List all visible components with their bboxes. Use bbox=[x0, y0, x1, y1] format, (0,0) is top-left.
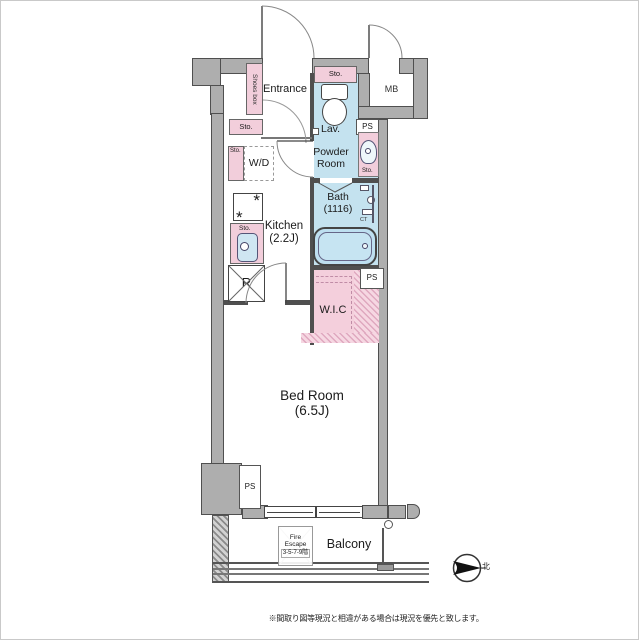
entrance-label: Entrance bbox=[259, 82, 311, 96]
powder-room-label: Powder Room bbox=[307, 145, 355, 173]
balcony-rail-line bbox=[213, 573, 429, 575]
compass-north-label: 北 bbox=[482, 563, 490, 572]
balcony-rail-line bbox=[213, 568, 429, 570]
ps-label: PS bbox=[367, 274, 378, 283]
balcony-divider-line bbox=[382, 528, 384, 566]
disclaimer-note: ※間取り図等現況と相違がある場合は現況を優先と致します。 bbox=[226, 613, 526, 626]
sto-label: Sto. bbox=[239, 225, 251, 232]
wall-powder-bath-left bbox=[314, 178, 320, 183]
balcony-rail-line bbox=[213, 562, 429, 564]
washer-dryer-space: W/D bbox=[244, 146, 274, 181]
ps-box-mid: PS bbox=[360, 268, 384, 289]
refrigerator-space: R bbox=[228, 265, 265, 302]
sto-label: Sto. bbox=[329, 70, 342, 78]
mb-label: MB bbox=[370, 73, 413, 106]
sliding-window bbox=[316, 506, 363, 518]
wic-wall-hatch-bottom bbox=[301, 333, 379, 343]
faucet-icon bbox=[365, 148, 371, 154]
balcony-drain-block bbox=[377, 564, 394, 571]
shower-pipe bbox=[372, 185, 374, 223]
balcony-hook bbox=[384, 520, 393, 529]
sliding-window bbox=[264, 506, 316, 518]
fire-escape-line2: Escape bbox=[285, 541, 307, 548]
wall-left-upper bbox=[210, 85, 224, 115]
bathtub bbox=[313, 227, 377, 266]
storage-strip-wd: Sto. bbox=[228, 146, 244, 181]
bath-counter bbox=[362, 209, 373, 215]
bathtub-drain bbox=[362, 243, 368, 249]
wall-bottom-right-seg bbox=[362, 505, 388, 519]
bedroom-label: Bed Room (6.5J) bbox=[265, 386, 359, 422]
wic-shelf-dash bbox=[316, 282, 352, 283]
shoes-box-label: Shoes box bbox=[251, 74, 258, 105]
mb-wall-right bbox=[413, 58, 428, 119]
ps-box-bottom: PS bbox=[239, 465, 261, 509]
storage-box-hall: Sto. bbox=[229, 119, 263, 135]
sto-label: Sto. bbox=[362, 168, 373, 175]
faucet-icon bbox=[240, 242, 249, 251]
washbasin-unit: Sto. bbox=[358, 132, 379, 177]
toilet-bowl bbox=[322, 98, 347, 126]
lav-label: Lav. bbox=[321, 124, 340, 136]
fire-escape-line1: Fire bbox=[290, 534, 301, 541]
refrigerator-label: R bbox=[240, 276, 253, 290]
entrance-step-line bbox=[261, 137, 312, 139]
burner-icon: * bbox=[253, 192, 260, 211]
pillar-bottom-left bbox=[201, 463, 242, 515]
sto-label: Sto. bbox=[230, 148, 241, 155]
storage-box-entrance: Sto. bbox=[314, 66, 357, 83]
wall-powder-bath-right bbox=[352, 178, 379, 183]
wall-left-main bbox=[211, 113, 224, 465]
floorplan-page: PS PS PS MB Shoes box Sto. Sto. Sto. W/D… bbox=[0, 0, 639, 640]
ps-label: PS bbox=[245, 483, 256, 492]
fire-escape-line3: 3-5-7-9階 bbox=[281, 549, 310, 558]
ps-label: PS bbox=[362, 123, 373, 132]
wd-label: W/D bbox=[249, 158, 269, 170]
kitchen-label: Kitchen (2.2J) bbox=[253, 216, 315, 249]
sto-label: Sto. bbox=[239, 123, 252, 131]
wall-bottom-ext bbox=[388, 505, 406, 519]
wall-corner-block bbox=[192, 58, 221, 86]
balcony-rail-line bbox=[213, 581, 429, 583]
balcony-label: Balcony bbox=[321, 537, 377, 553]
wall-bedroom-right bbox=[285, 300, 312, 305]
wic-label: W.I.C bbox=[312, 303, 354, 318]
wic-shelf-dash bbox=[316, 276, 352, 277]
wall-right-main bbox=[378, 119, 388, 511]
bath-label: Bath (1116) bbox=[314, 189, 362, 219]
paper-holder bbox=[312, 128, 319, 135]
fire-escape-hatch: Fire Escape 3-5-7-9階 bbox=[278, 526, 313, 566]
wall-bottom-ext-round bbox=[407, 504, 420, 519]
